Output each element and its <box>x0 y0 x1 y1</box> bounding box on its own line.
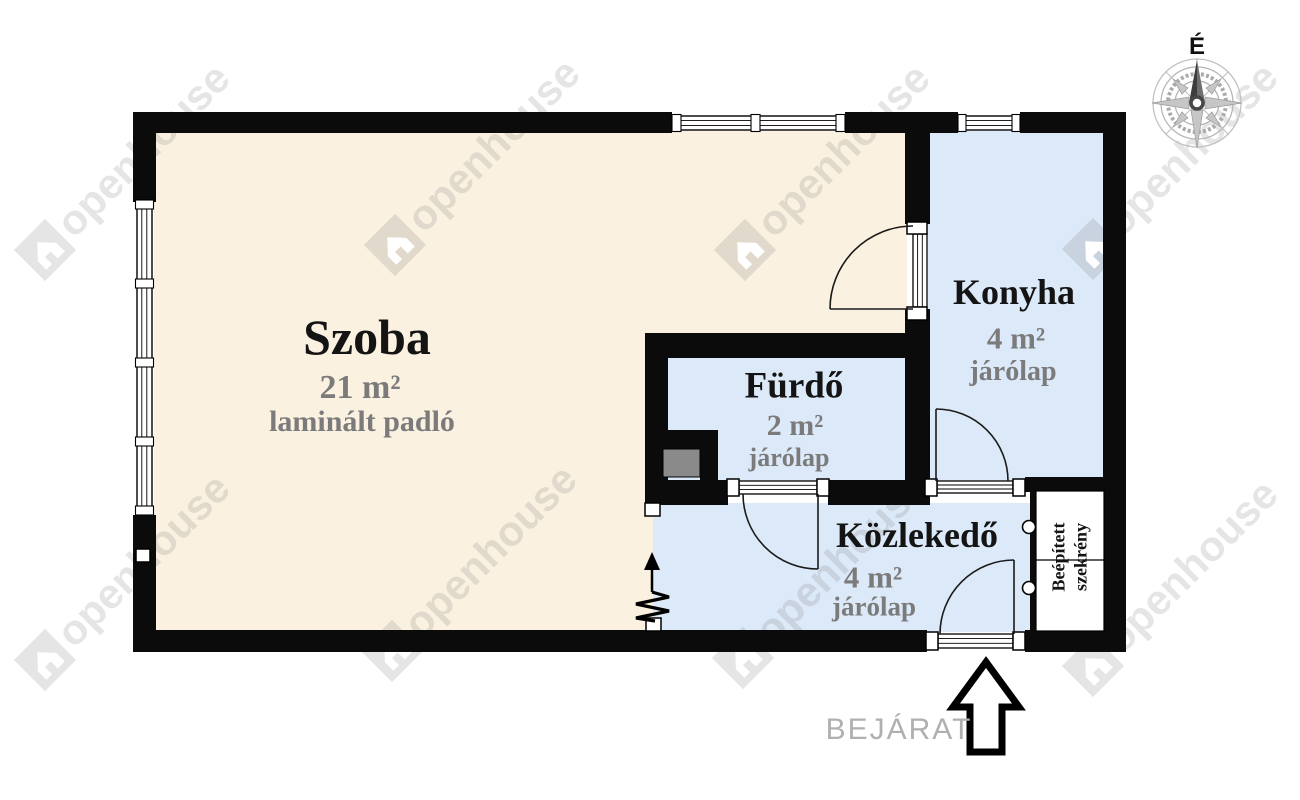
window-mullion <box>958 115 966 132</box>
wall-segment <box>645 333 930 358</box>
door-jamb <box>926 632 938 650</box>
entrance-label: BEJÁRAT <box>826 715 973 745</box>
window-mullion <box>136 437 154 446</box>
window-mullion <box>136 279 154 288</box>
passage-jamb <box>645 503 660 516</box>
door-threshold-konyha <box>937 481 1013 493</box>
floor-plan: openhouse openhouse openhouse openhouse … <box>0 0 1300 800</box>
wall-segment <box>133 112 672 133</box>
wall-marker <box>136 549 150 562</box>
wall-segment <box>700 449 718 480</box>
room-area-furdo: 2 m² <box>767 411 823 441</box>
compass-north-label: É <box>1189 35 1205 59</box>
window-mullion <box>836 115 845 132</box>
window-top-szoba <box>672 115 845 132</box>
door-threshold-szoba-konyha <box>913 234 927 307</box>
wall-segment <box>845 112 958 133</box>
window-left <box>136 200 154 515</box>
wall-segment <box>645 480 728 505</box>
window-mullion <box>136 200 154 209</box>
window-mullion <box>136 506 154 515</box>
wall-segment <box>1025 477 1104 492</box>
window-mullion <box>672 115 681 132</box>
room-name-konyha: Konyha <box>953 274 1075 310</box>
room-area-kozlekedo: 4 m² <box>844 562 902 593</box>
floor-fills <box>154 131 1106 632</box>
closet-label: Beépített szekrény <box>1048 498 1091 616</box>
wall-segment <box>133 630 927 652</box>
door-jamb <box>1013 632 1025 650</box>
wall-segment <box>133 112 156 202</box>
floor-plan-drawing: openhouse openhouse openhouse openhouse … <box>0 0 1300 800</box>
door-jamb <box>817 479 829 496</box>
room-floor-furdo: járólap <box>749 445 830 471</box>
door-jamb <box>1013 479 1025 496</box>
door-jamb <box>925 479 937 496</box>
door-threshold-entrance <box>938 634 1013 648</box>
room-floor-szoba: laminált padló <box>269 407 455 437</box>
wall-segment <box>1025 630 1126 652</box>
compass-rose <box>1152 58 1242 148</box>
door-jamb <box>907 222 927 234</box>
compass-hub <box>1191 97 1203 109</box>
window-mullion <box>751 115 760 132</box>
window-mullion <box>1012 115 1020 132</box>
window-mullion <box>136 358 154 367</box>
room-floor-kozlekedo: járólap <box>832 594 916 621</box>
szoba-floor-area <box>154 131 907 335</box>
window-top-konyha <box>958 115 1020 132</box>
room-area-szoba: 21 m² <box>319 371 400 405</box>
wall-segment <box>645 333 668 505</box>
closet-knob <box>1023 521 1036 534</box>
wall-segment <box>905 133 930 224</box>
door-threshold-furdo <box>739 481 817 494</box>
shaft-square <box>663 449 700 477</box>
room-name-szoba: Szoba <box>303 312 431 362</box>
wall-segment <box>828 480 930 505</box>
room-area-konyha: 4 m² <box>987 323 1045 354</box>
closet-knob <box>1023 582 1036 595</box>
room-name-furdo: Fürdő <box>745 368 844 405</box>
room-floor-konyha: járólap <box>969 358 1056 386</box>
room-name-kozlekedo: Közlekedő <box>836 517 998 553</box>
wall-segment <box>662 430 718 449</box>
wall-segment <box>1103 112 1126 652</box>
door-jamb <box>727 479 739 496</box>
